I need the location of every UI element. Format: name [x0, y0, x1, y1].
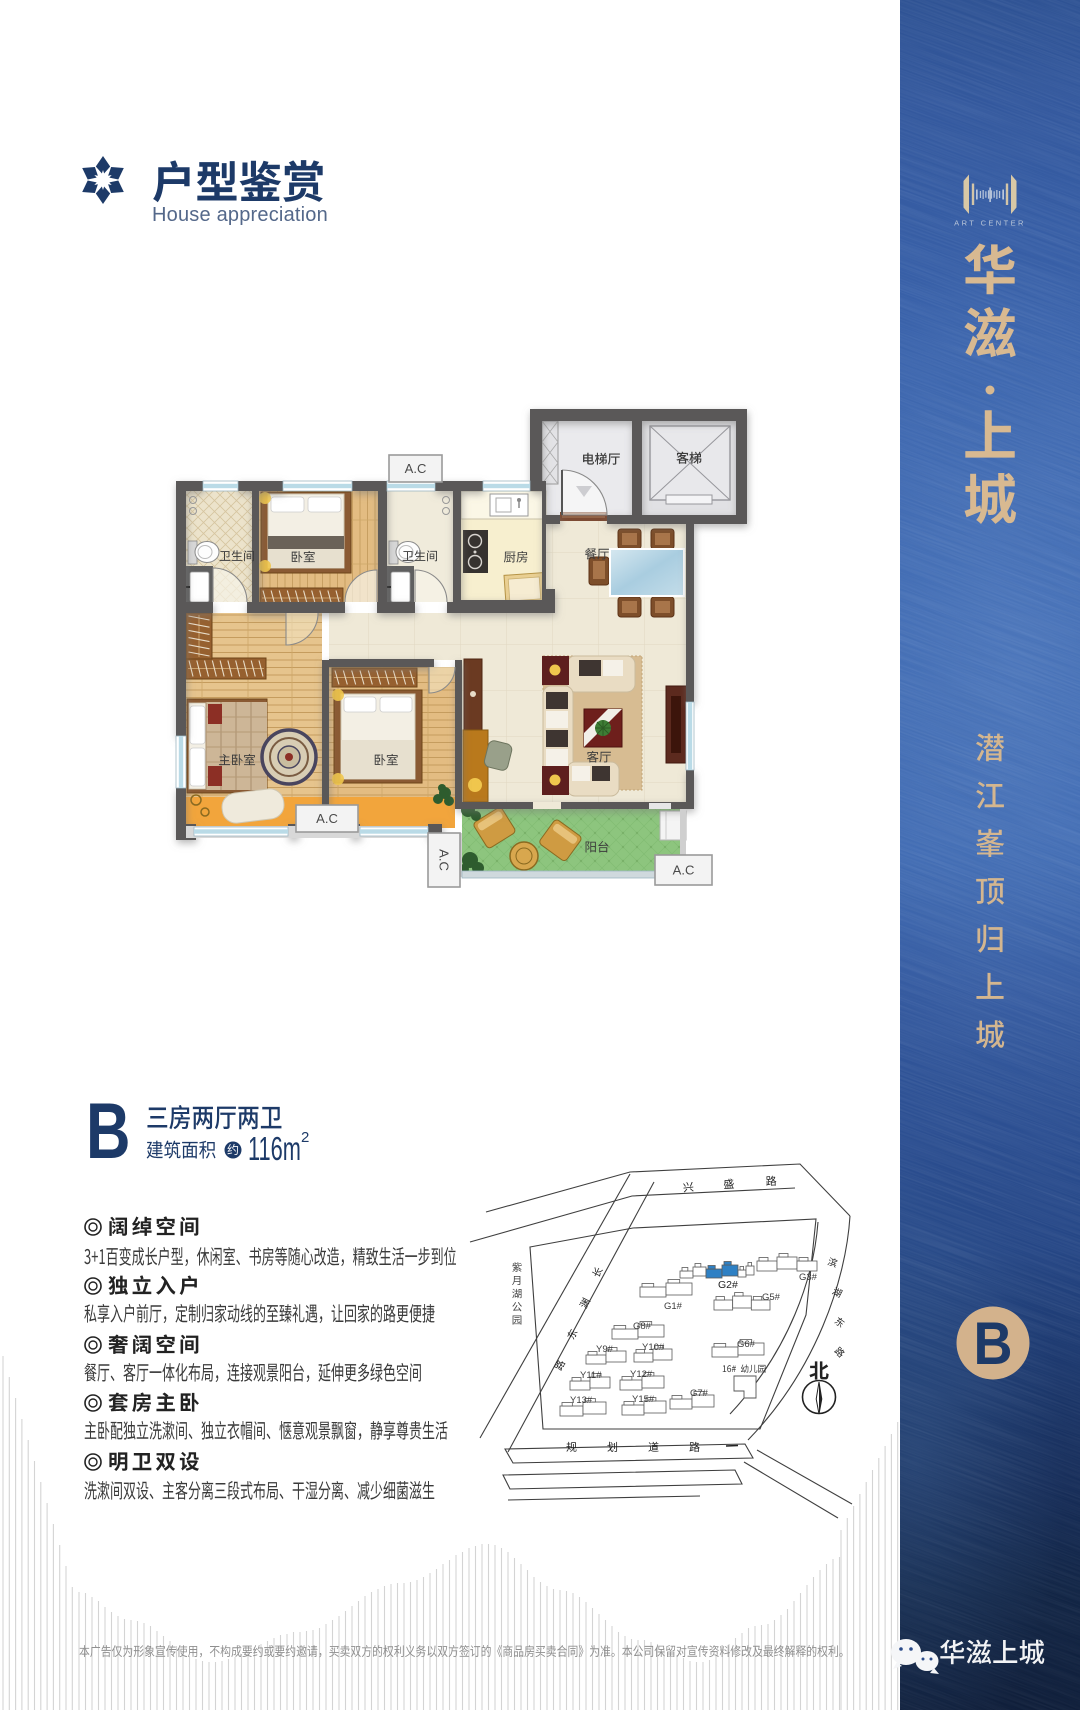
svg-text:Y12#: Y12#: [630, 1369, 653, 1380]
svg-text:Y10#: Y10#: [642, 1342, 665, 1353]
svg-text:B: B: [974, 1310, 1013, 1377]
svg-text:G1#: G1#: [664, 1301, 683, 1312]
svg-text:A.C: A.C: [316, 811, 338, 826]
svg-text:Y9#: Y9#: [596, 1344, 614, 1355]
svg-text:A.C: A.C: [673, 863, 695, 878]
svg-text:Y15#: Y15#: [632, 1394, 655, 1405]
svg-text:116m: 116m: [248, 1130, 301, 1167]
svg-text:House appreciation: House appreciation: [152, 204, 328, 226]
svg-text:G5#: G5#: [762, 1292, 781, 1303]
svg-text:G2#: G2#: [718, 1279, 738, 1291]
svg-text:G8#: G8#: [633, 1321, 652, 1332]
svg-text:Y11#: Y11#: [580, 1370, 602, 1381]
svg-text:G6#: G6#: [737, 1339, 756, 1350]
svg-text:A.C: A.C: [405, 461, 427, 476]
svg-text:Y13#: Y13#: [570, 1395, 593, 1406]
svg-text:A.C: A.C: [437, 849, 452, 871]
svg-text:2: 2: [301, 1129, 309, 1146]
svg-text:G3#: G3#: [799, 1272, 818, 1283]
svg-text:G7#: G7#: [690, 1388, 709, 1399]
svg-text:ART CENTER: ART CENTER: [954, 219, 1026, 228]
svg-text:B: B: [86, 1088, 130, 1176]
